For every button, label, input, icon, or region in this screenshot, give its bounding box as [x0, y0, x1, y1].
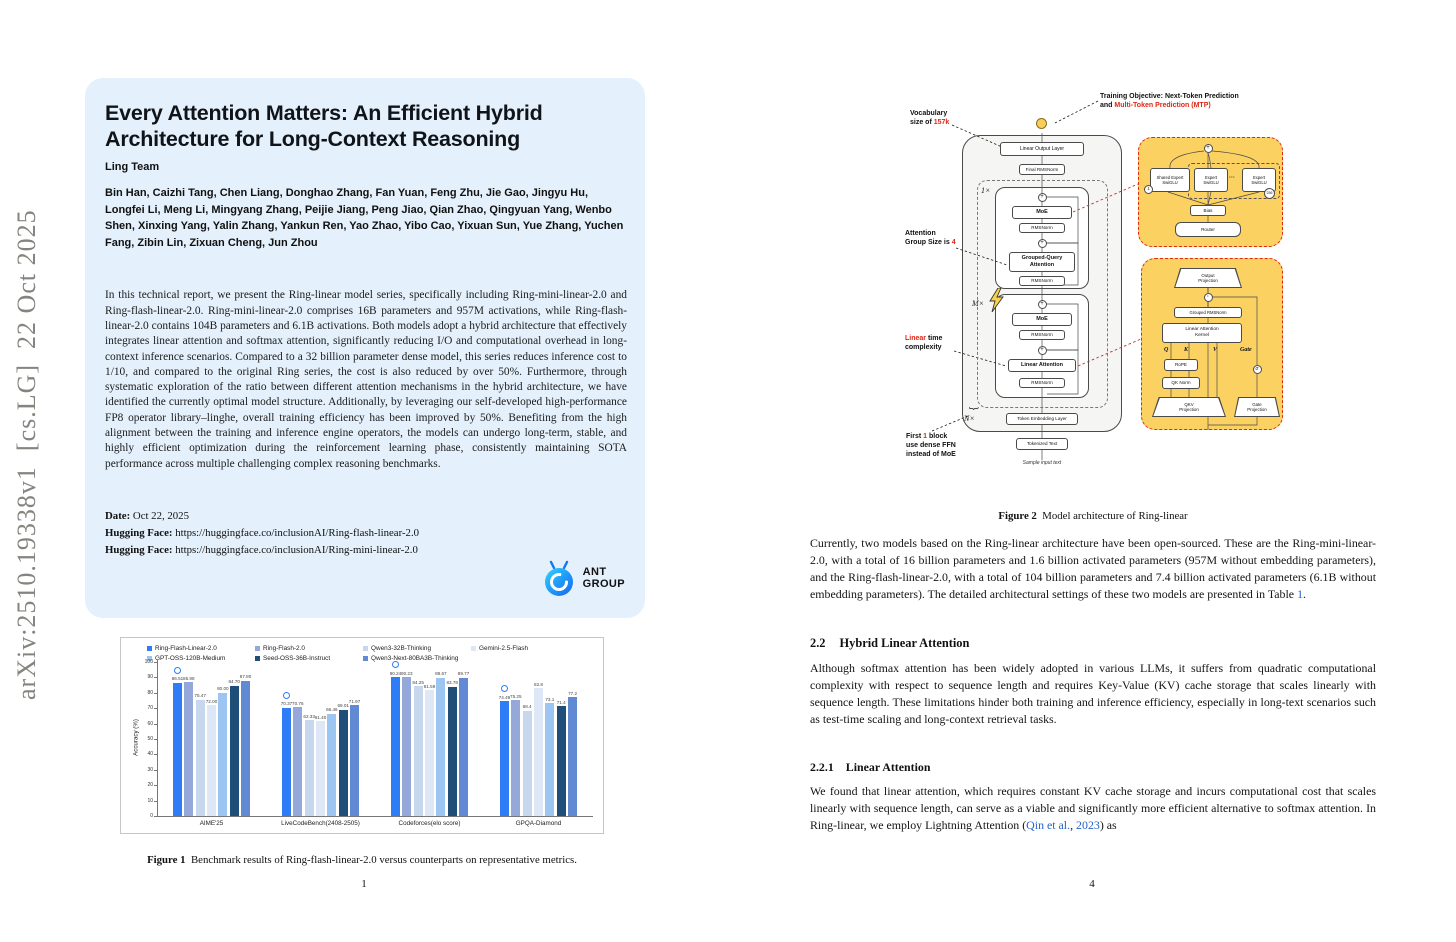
expert-box: Expert SwiGLU	[1194, 168, 1228, 192]
bar	[436, 678, 445, 816]
hf-label: Hugging Face:	[105, 544, 172, 556]
add-icon: +	[1038, 300, 1047, 309]
team-name: Ling Team	[105, 161, 625, 173]
figure2-caption: Figure 2 Model architecture of Ring-line…	[810, 510, 1376, 522]
figure1-caption-text: Benchmark results of Ring-flash-linear-2…	[191, 854, 577, 866]
linear-attention-kernel-box: Linear Attention Kernel	[1162, 323, 1242, 343]
date-line: Date: Oct 22, 2025	[105, 508, 625, 525]
bar	[184, 682, 193, 816]
bar-value-label: 75.25	[503, 694, 529, 699]
legend-label: Ring-Flash-Linear-2.0	[155, 645, 217, 652]
y-tick-label: 20	[137, 782, 153, 788]
hf-line-mini: Hugging Face: https://huggingface.co/inc…	[105, 542, 625, 559]
figure1-chart: Ring-Flash-Linear-2.0Ring-Flash-2.0Qwen3…	[120, 637, 604, 834]
rmsnorm-box: RMSNorm	[1019, 330, 1065, 340]
ring-mascot-icon	[174, 667, 181, 674]
figure2-diagram: Training Objective: Next-Token Predictio…	[806, 85, 1380, 493]
bar-value-label: 86.98	[176, 676, 202, 681]
legend-label: Qwen3-Next-80BA3B-Thinking	[371, 655, 458, 662]
paragraph-linear-attention: We found that linear attention, which re…	[810, 783, 1376, 834]
token-embedding-layer-box: Token Embedding Layer	[1006, 413, 1078, 425]
qkv-projection-box: QKV Projection	[1152, 397, 1226, 417]
ring-mascot-icon	[501, 685, 508, 692]
attention-group-note: Attention Group Size is 4	[905, 230, 956, 248]
y-tick-mark	[154, 801, 157, 802]
bar	[448, 687, 457, 816]
v-label: V	[1213, 347, 1217, 353]
legend-marker	[255, 646, 260, 651]
y-tick-label: 0	[137, 813, 153, 819]
add-icon: +	[1038, 239, 1047, 248]
legend-item: Gemini-2.5-Flash	[471, 643, 579, 653]
legend-marker	[363, 646, 368, 651]
expert-index-last: 256	[1264, 188, 1275, 199]
paragraph-open-sourced: Currently, two models based on the Ring-…	[810, 535, 1376, 603]
y-tick-mark	[154, 816, 157, 817]
ring-mascot-icon	[283, 692, 290, 699]
bar	[305, 720, 314, 816]
paragraph-text: .	[1303, 587, 1306, 601]
rmsnorm-box: RMSNorm	[1019, 378, 1065, 388]
qk-norm-box: QK Norm	[1162, 377, 1200, 389]
figure2-caption-label: Figure 2	[998, 510, 1037, 522]
bar	[568, 697, 577, 816]
section-title: Hybrid Linear Attention	[840, 636, 970, 650]
bar	[327, 714, 336, 816]
sigmoid-icon: σ	[1253, 365, 1262, 374]
bar	[402, 677, 411, 816]
multiplier-nx: N×	[964, 414, 975, 423]
bar	[500, 701, 509, 816]
ellipsis: ···	[1229, 175, 1235, 181]
bar	[523, 711, 532, 816]
add-icon: +	[1204, 144, 1213, 153]
chart-legend: Ring-Flash-Linear-2.0Ring-Flash-2.0Qwen3…	[147, 643, 599, 663]
bar-value-label: 87.80	[233, 674, 259, 679]
q-label: Q	[1164, 347, 1168, 353]
hf-link-mini[interactable]: https://huggingface.co/inclusionAI/Ring-…	[175, 544, 418, 556]
legend-row: GPT-OSS-120B-MediumSeed-OSS-36B-Instruct…	[147, 653, 599, 663]
gate-label: Gate	[1240, 347, 1252, 353]
bar	[414, 686, 423, 816]
figure1-caption: Figure 1 Benchmark results of Ring-flash…	[110, 854, 614, 866]
legend-label: Gemini-2.5-Flash	[479, 645, 528, 652]
date-label: Date:	[105, 510, 130, 522]
y-tick-mark	[154, 754, 157, 755]
add-icon: +	[1038, 346, 1047, 355]
y-tick-mark	[154, 785, 157, 786]
ant-logo-text: ANT GROUP	[583, 567, 625, 590]
bar	[316, 721, 325, 816]
figure1-caption-label: Figure 1	[147, 854, 186, 866]
k-label: K	[1184, 347, 1188, 353]
bar-value-label: 75.47	[187, 693, 213, 698]
legend-marker	[147, 646, 152, 651]
legend-label: Qwen3-32B-Thinking	[371, 645, 431, 652]
rmsnorm-box: RMSNorm	[1019, 223, 1065, 233]
bar	[534, 688, 543, 816]
legend-marker	[255, 656, 260, 661]
bar	[173, 683, 182, 816]
final-rmsnorm-box: Final RMSNorm	[1019, 164, 1065, 175]
y-axis-line	[157, 660, 158, 816]
bar-value-label: 71.97	[342, 699, 368, 704]
y-tick-label: 10	[137, 798, 153, 804]
hf-line-flash: Hugging Face: https://huggingface.co/inc…	[105, 525, 625, 542]
moe-box-2: MoE	[1012, 313, 1072, 326]
bar-value-label: 77.2	[560, 691, 586, 696]
paragraph-softmax: Although softmax attention has been wide…	[810, 660, 1376, 728]
bar	[511, 700, 520, 816]
grouped-rmsnorm-box: Grouped RMSNorm	[1174, 307, 1242, 318]
section-number: 2.2.1	[810, 760, 834, 774]
bar	[196, 700, 205, 816]
tokenized-text-box: Tokenized Text	[1016, 438, 1068, 450]
rope-box: RoPE	[1164, 359, 1198, 371]
bar	[459, 678, 468, 816]
legend-label: GPT-OSS-120B-Medium	[155, 655, 225, 662]
y-tick-mark	[154, 708, 157, 709]
training-objective-note: Training Objective: Next-Token Predictio…	[1100, 93, 1239, 111]
y-tick-label: 90	[137, 674, 153, 680]
bar	[425, 690, 434, 816]
linear-time-note: Linear time complexity	[905, 335, 942, 353]
legend-item: Seed-OSS-36B-Instruct	[255, 653, 363, 663]
bar	[218, 693, 227, 816]
gate-projection-box: Gate Projection	[1234, 397, 1280, 417]
x-category-label: GPQA-Diamond	[484, 820, 593, 827]
authors: Bin Han, Caizhi Tang, Chen Liang, Dongha…	[105, 185, 629, 251]
bar-value-label: 89.77	[451, 671, 477, 676]
first-word: First	[906, 433, 923, 440]
paragraph-text: ) as	[1100, 818, 1117, 832]
bar	[350, 705, 359, 816]
attention-group-size: 4	[952, 239, 956, 246]
bar-value-label: 82.8	[526, 682, 552, 687]
x-category-label: AIME'25	[157, 820, 266, 827]
right-page-number: 4	[1082, 878, 1102, 890]
bias-box: Bias	[1190, 205, 1226, 216]
add-icon: +	[1038, 193, 1047, 202]
y-tick-mark	[154, 739, 157, 740]
meta-block: Date: Oct 22, 2025 Hugging Face: https:/…	[105, 508, 625, 560]
linear-attention-box: Linear Attention	[1008, 359, 1076, 372]
section-title: Linear Attention	[846, 760, 931, 774]
figure2-caption-text: Model architecture of Ring-linear	[1042, 510, 1187, 522]
bar-value-label: 70.76	[285, 701, 311, 706]
ring-mascot-icon	[392, 661, 399, 668]
y-axis-title: Accuracy (%)	[133, 707, 140, 769]
output-projection-box: Output Projection	[1174, 268, 1242, 288]
title-card: Every Attention Matters: An Efficient Hy…	[85, 78, 645, 618]
bar	[339, 710, 348, 816]
legend-label: Seed-OSS-36B-Instruct	[263, 655, 330, 662]
y-tick-mark	[154, 677, 157, 678]
sample-input-text: Sample input text	[992, 460, 1092, 466]
legend-item: GPT-OSS-120B-Medium	[147, 653, 255, 663]
left-page-number: 1	[354, 878, 374, 890]
x-category-label: Codeforces(elo score)	[375, 820, 484, 827]
shared-expert-box: Shared Expert SwiGLU	[1150, 168, 1190, 192]
vocab-note: Vocabulary size of 157k	[910, 110, 949, 128]
arxiv-watermark: arXiv:2510.19338v1 [cs.LG] 22 Oct 2025	[12, 250, 42, 700]
abstract: In this technical report, we present the…	[105, 288, 627, 471]
y-tick-mark	[154, 724, 157, 725]
bar-value-label: 90.23	[394, 671, 420, 676]
bar	[230, 686, 239, 816]
paper-title: Every Attention Matters: An Efficient Hy…	[105, 100, 625, 152]
linear-output-layer-box: Linear Output Layer	[1000, 142, 1084, 156]
legend-row: Ring-Flash-Linear-2.0Ring-Flash-2.0Qwen3…	[147, 643, 599, 653]
qin-citation-link[interactable]: Qin et al.	[1026, 818, 1070, 832]
hf-label: Hugging Face:	[105, 527, 172, 539]
y-tick-label: 80	[137, 690, 153, 696]
grouped-query-attention-box: Grouped-Query Attention	[1009, 252, 1075, 272]
section-2-2-heading: 2.2Hybrid Linear Attention	[810, 636, 1376, 651]
y-tick-mark	[154, 662, 157, 663]
legend-marker	[363, 656, 368, 661]
expert-index-first: 1	[1144, 185, 1153, 194]
bar	[545, 703, 554, 816]
bar	[241, 681, 250, 816]
ant-logo-icon	[542, 560, 578, 598]
ant-group-logo: ANT GROUP	[542, 560, 625, 598]
router-box: Router	[1175, 222, 1241, 237]
bar	[207, 705, 216, 816]
y-tick-label: 100	[137, 659, 153, 665]
legend-item: Ring-Flash-Linear-2.0	[147, 643, 255, 653]
bar	[282, 708, 291, 816]
rmsnorm-box: RMSNorm	[1019, 276, 1065, 286]
brace-icon: }	[968, 407, 979, 410]
hf-link-flash[interactable]: https://huggingface.co/inclusionAI/Ring-…	[175, 527, 419, 539]
vocab-size: 157k	[934, 119, 950, 126]
logo-word-group: GROUP	[583, 579, 625, 591]
legend-item: Qwen3-32B-Thinking	[363, 643, 471, 653]
linear-word: Linear	[905, 335, 926, 342]
moe-box-1: MoE	[1012, 206, 1072, 219]
legend-item: Qwen3-Next-80BA3B-Thinking	[363, 653, 471, 663]
y-tick-mark	[154, 693, 157, 694]
section-number: 2.2	[810, 636, 826, 650]
bar	[391, 677, 400, 816]
section-2-2-1-heading: 2.2.1Linear Attention	[810, 760, 1376, 775]
date-value: Oct 22, 2025	[133, 510, 189, 522]
attention-group-text: Attention Group Size is	[905, 230, 952, 246]
year-citation-link[interactable]: 2023	[1076, 818, 1100, 832]
first-block-note: First 1 block use dense FFN instead of M…	[906, 433, 956, 459]
y-tick-mark	[154, 770, 157, 771]
legend-label: Ring-Flash-2.0	[263, 645, 305, 652]
multiply-icon: ·	[1204, 293, 1213, 302]
bar	[557, 706, 566, 816]
training-objective-mtp: Multi-Token Prediction (MTP)	[1114, 102, 1210, 109]
paragraph-text: Currently, two models based on the Ring-…	[810, 536, 1376, 601]
mtp-token-node	[1036, 118, 1047, 129]
x-category-label: LiveCodeBench(2408-2505)	[266, 820, 375, 827]
legend-item: Ring-Flash-2.0	[255, 643, 363, 653]
legend-marker	[471, 646, 476, 651]
x-axis-line	[157, 816, 593, 817]
bar	[293, 707, 302, 816]
